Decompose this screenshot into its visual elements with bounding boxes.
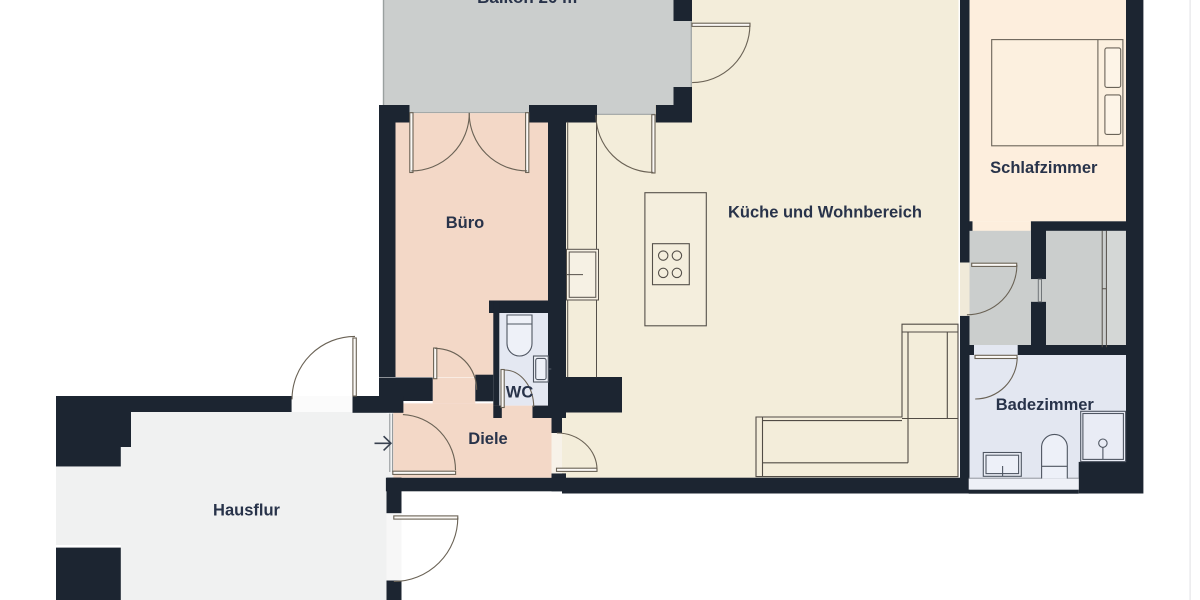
svg-text:Hausflur: Hausflur: [213, 502, 281, 520]
svg-text:Balkon 20 m²: Balkon 20 m²: [477, 0, 583, 7]
svg-text:Schlafzimmer: Schlafzimmer: [990, 159, 1098, 177]
svg-text:Küche und Wohnbereich: Küche und Wohnbereich: [728, 204, 922, 222]
svg-text:WC: WC: [506, 384, 534, 402]
svg-text:Badezimmer: Badezimmer: [996, 396, 1095, 414]
svg-text:Diele: Diele: [468, 430, 507, 448]
svg-text:Büro: Büro: [446, 214, 485, 232]
